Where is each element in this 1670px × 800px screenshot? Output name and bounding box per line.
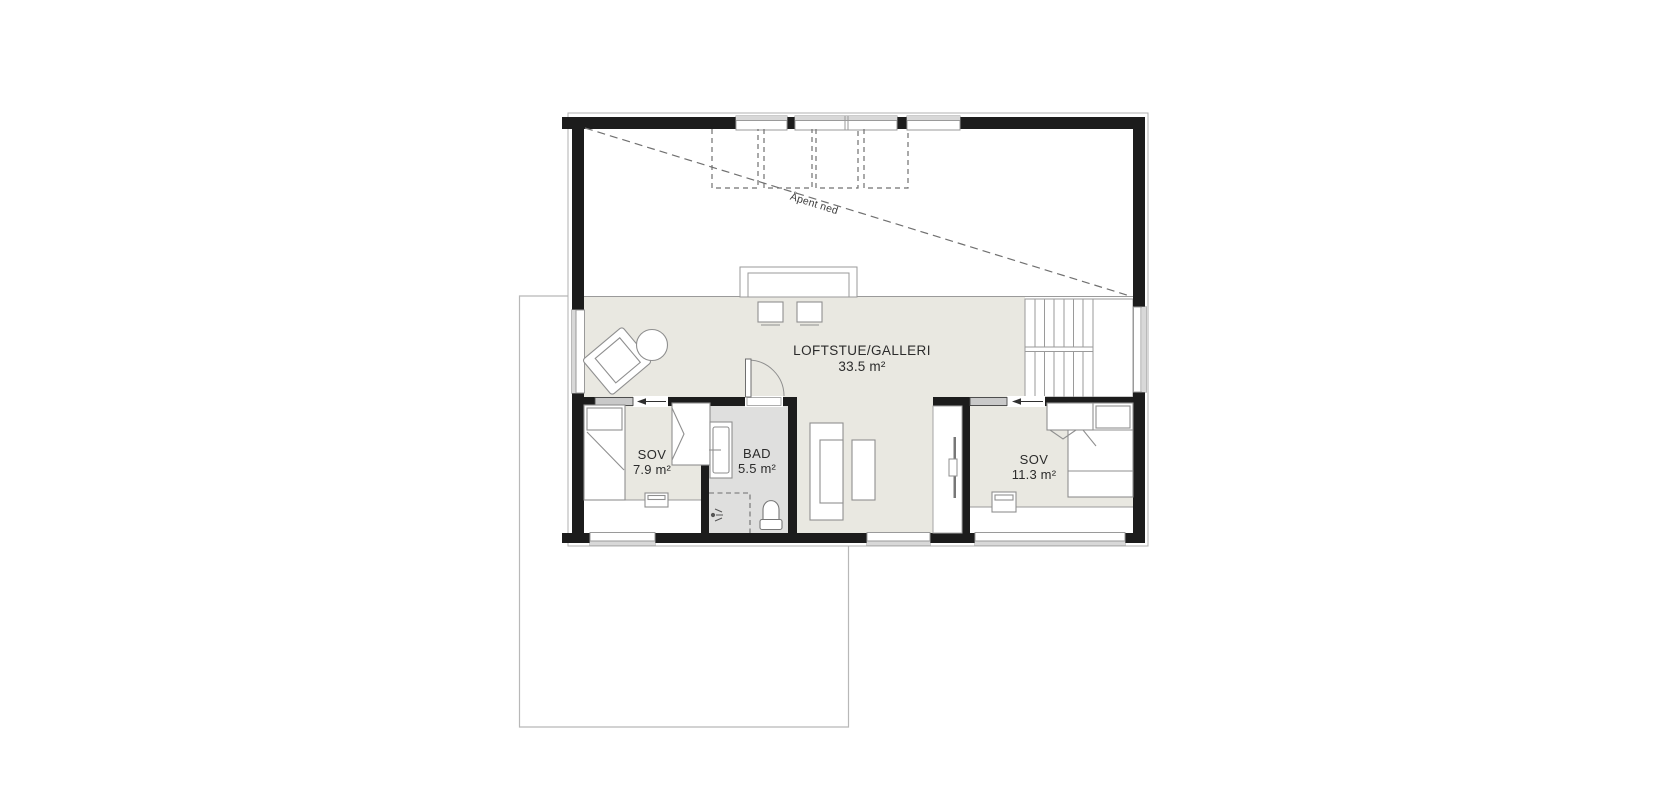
staircase [1025, 299, 1133, 397]
room-area: 7.9 m² [592, 462, 712, 477]
room-label-loftstue: LOFTSTUE/GALLERI 33.5 m² [762, 343, 962, 375]
wall-sov-right-left [962, 397, 970, 543]
room-name: SOV [592, 447, 712, 462]
room-label-sov-left: SOV 7.9 m² [592, 447, 712, 478]
gallery-stool-2 [797, 302, 822, 325]
room-area: 11.3 m² [974, 467, 1094, 482]
room-area: 5.5 m² [697, 461, 817, 476]
room-name: LOFTSTUE/GALLERI [762, 343, 962, 359]
dresser [645, 493, 668, 507]
room-name: BAD [697, 446, 817, 461]
room-label-bad: BAD 5.5 m² [697, 446, 817, 477]
sliding-door-sov-right [970, 396, 1045, 407]
window-top-2 [795, 116, 897, 130]
room-label-sov-right: SOV 11.3 m² [974, 452, 1094, 483]
floor-plan-drawing [0, 0, 1670, 800]
room-area: 33.5 m² [762, 359, 962, 375]
nightstand [992, 492, 1016, 512]
window-left [572, 310, 585, 393]
room-name: SOV [974, 452, 1094, 467]
window-bottom-2 [867, 533, 930, 546]
gallery-stool-1 [758, 302, 783, 325]
window-top-3 [907, 116, 960, 130]
coffee-table [852, 440, 875, 500]
door-leaf [746, 359, 752, 397]
window-bottom-3 [975, 533, 1125, 546]
stair-well [1025, 299, 1133, 397]
window-bottom-1 [590, 533, 655, 546]
gallery-railing [740, 267, 857, 297]
floor-plan-page: LOFTSTUE/GALLERI 33.5 m² SOV 7.9 m² BAD … [0, 0, 1670, 800]
round-table [637, 330, 668, 361]
window-top-1 [736, 116, 787, 130]
window-right [1134, 307, 1147, 392]
sliding-door-pocket [933, 406, 962, 533]
